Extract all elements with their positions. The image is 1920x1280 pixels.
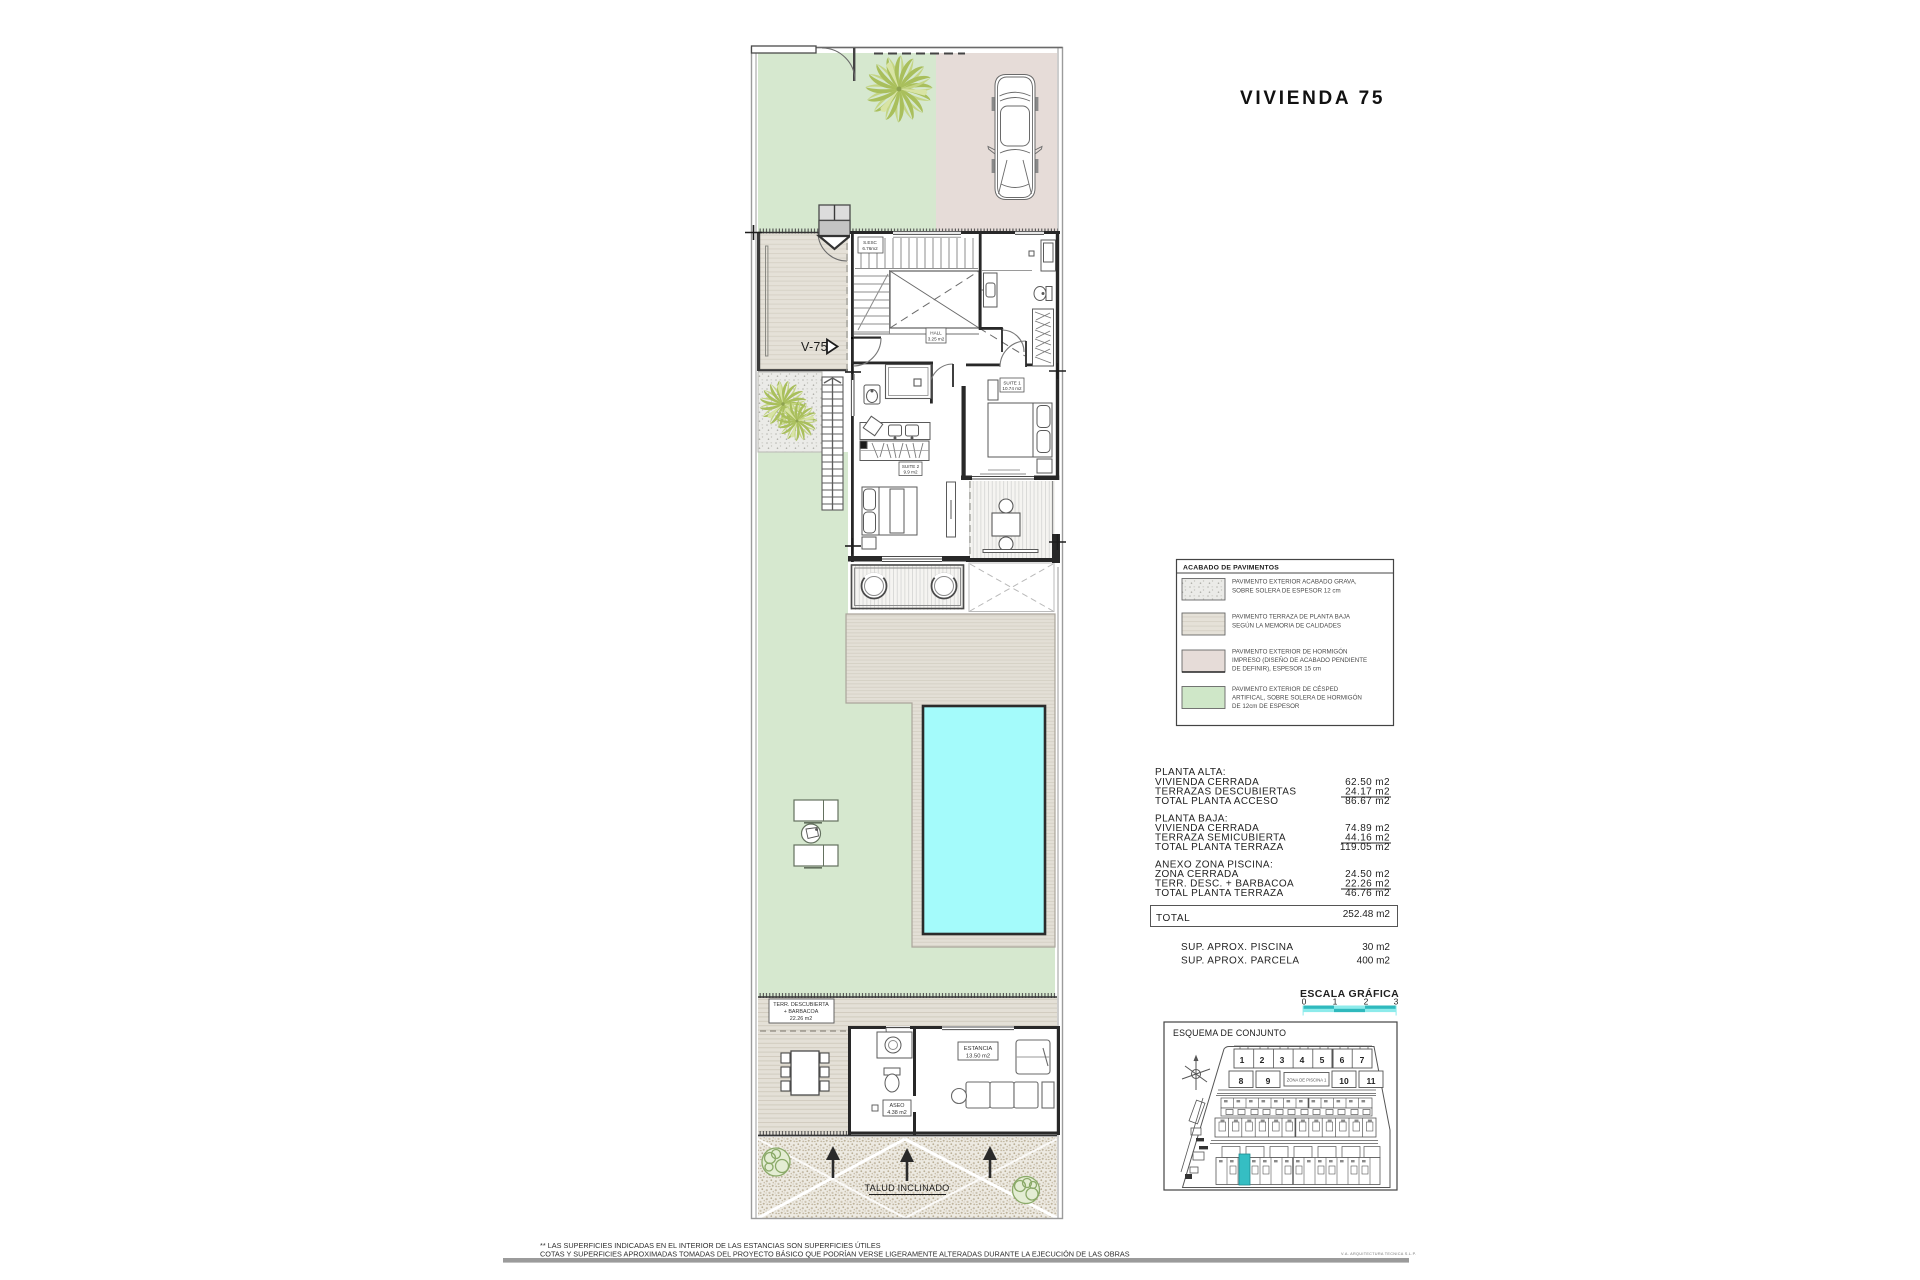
svg-text:SUITE 1: SUITE 1 bbox=[1003, 381, 1021, 386]
svg-text:3.25 m2: 3.25 m2 bbox=[928, 337, 945, 342]
svg-text:PAVIMENTO EXTERIOR DE HORMIGÓN: PAVIMENTO EXTERIOR DE HORMIGÓN bbox=[1232, 649, 1348, 656]
svg-text:119.05 m2: 119.05 m2 bbox=[1340, 842, 1390, 853]
svg-text:7: 7 bbox=[1360, 1055, 1365, 1065]
svg-text:+ BARBACOA: + BARBACOA bbox=[784, 1009, 819, 1015]
svg-text:10: 10 bbox=[1339, 1076, 1349, 1086]
svg-text:V.A. ARQUITECTURA TECNICA S.L.: V.A. ARQUITECTURA TECNICA S.L.P. bbox=[1341, 1252, 1416, 1256]
svg-text:400 m2: 400 m2 bbox=[1357, 956, 1391, 967]
svg-text:30 m2: 30 m2 bbox=[1362, 942, 1390, 953]
svg-text:1: 1 bbox=[1333, 997, 1338, 1007]
svg-text:TOTAL PLANTA ACCESO: TOTAL PLANTA ACCESO bbox=[1155, 796, 1278, 807]
svg-text:SUP. APROX. PISCINA: SUP. APROX. PISCINA bbox=[1181, 942, 1293, 953]
svg-text:1: 1 bbox=[1240, 1055, 1245, 1065]
svg-text:PAVIMENTO TERRAZA DE PLANTA BA: PAVIMENTO TERRAZA DE PLANTA BAJA bbox=[1232, 614, 1351, 621]
svg-text:3: 3 bbox=[1394, 997, 1399, 1007]
svg-text:SUP. APROX. PARCELA: SUP. APROX. PARCELA bbox=[1181, 956, 1299, 967]
svg-text:SUITE 2: SUITE 2 bbox=[902, 464, 920, 469]
svg-text:COTAS Y SUPERFICIES APROXIMADA: COTAS Y SUPERFICIES APROXIMADAS TOMADAS … bbox=[540, 1250, 1130, 1259]
svg-text:ESTANCIA: ESTANCIA bbox=[964, 1046, 993, 1052]
svg-text:8: 8 bbox=[1239, 1076, 1244, 1086]
svg-text:46.76 m2: 46.76 m2 bbox=[1345, 888, 1390, 899]
svg-text:3: 3 bbox=[1280, 1055, 1285, 1065]
svg-text:ACABADO DE PAVIMENTOS: ACABADO DE PAVIMENTOS bbox=[1183, 565, 1279, 572]
svg-text:TERR. DESCUBIERTA: TERR. DESCUBIERTA bbox=[773, 1002, 829, 1008]
svg-text:TOTAL PLANTA TERRAZA: TOTAL PLANTA TERRAZA bbox=[1155, 842, 1284, 853]
svg-text:DE 12cm DE ESPESOR: DE 12cm DE ESPESOR bbox=[1232, 703, 1300, 710]
svg-text:2: 2 bbox=[1260, 1055, 1265, 1065]
svg-text:SEGÚN LA MEMORIA DE CALIDADES: SEGÚN LA MEMORIA DE CALIDADES bbox=[1232, 623, 1341, 630]
svg-text:86.67 m2: 86.67 m2 bbox=[1345, 796, 1390, 807]
svg-text:SOBRE SOLERA DE ESPESOR 12 cm: SOBRE SOLERA DE ESPESOR 12 cm bbox=[1232, 588, 1341, 595]
svg-text:TALUD INCLINADO: TALUD INCLINADO bbox=[864, 1183, 949, 1193]
svg-text:VIVIENDA 75: VIVIENDA 75 bbox=[1240, 88, 1385, 109]
svg-text:DE DEFINIR), ESPESOR 15 cm: DE DEFINIR), ESPESOR 15 cm bbox=[1232, 666, 1321, 673]
svg-text:V-75: V-75 bbox=[801, 340, 828, 354]
svg-text:2: 2 bbox=[1364, 997, 1369, 1007]
svg-text:ASEO: ASEO bbox=[890, 1103, 905, 1109]
svg-text:4.38 m2: 4.38 m2 bbox=[887, 1110, 906, 1116]
svg-text:ESCALA GRÁFICA: ESCALA GRÁFICA bbox=[1300, 987, 1399, 1000]
svg-text:ZONA DE PISCINA 1: ZONA DE PISCINA 1 bbox=[1287, 1078, 1327, 1083]
svg-text:10.74 m2: 10.74 m2 bbox=[1002, 386, 1022, 391]
svg-text:TOTAL: TOTAL bbox=[1156, 913, 1190, 924]
svg-text:22.26 m2: 22.26 m2 bbox=[790, 1016, 812, 1022]
svg-text:ESQUEMA DE CONJUNTO: ESQUEMA DE CONJUNTO bbox=[1173, 1028, 1286, 1038]
svg-text:11: 11 bbox=[1367, 1076, 1376, 1086]
svg-text:PAVIMENTO EXTERIOR ACABADO GRA: PAVIMENTO EXTERIOR ACABADO GRAVA, bbox=[1232, 579, 1357, 586]
svg-text:IMPRESO (DISEÑO DE ACABADO PEN: IMPRESO (DISEÑO DE ACABADO PENDIENTE bbox=[1232, 657, 1367, 664]
svg-text:4: 4 bbox=[1300, 1055, 1305, 1065]
svg-text:9.9 m2: 9.9 m2 bbox=[903, 470, 917, 475]
svg-text:ARTIFICAL, SOBRE SOLERA DE HOR: ARTIFICAL, SOBRE SOLERA DE HORMIGÓN bbox=[1232, 695, 1362, 702]
svg-text:9: 9 bbox=[1266, 1076, 1271, 1086]
svg-text:0: 0 bbox=[1302, 997, 1307, 1007]
svg-text:6: 6 bbox=[1340, 1055, 1345, 1065]
svg-text:6.76m2: 6.76m2 bbox=[862, 246, 878, 251]
svg-text:S.ESC: S.ESC bbox=[863, 240, 877, 245]
svg-text:252.48 m2: 252.48 m2 bbox=[1343, 909, 1391, 920]
svg-text:PAVIMENTO EXTERIOR DE CÉSPED: PAVIMENTO EXTERIOR DE CÉSPED bbox=[1232, 686, 1339, 693]
svg-text:HALL: HALL bbox=[930, 331, 942, 336]
svg-text:TOTAL PLANTA TERRAZA: TOTAL PLANTA TERRAZA bbox=[1155, 888, 1284, 899]
svg-text:5: 5 bbox=[1320, 1055, 1325, 1065]
svg-text:13.50 m2: 13.50 m2 bbox=[966, 1054, 990, 1060]
